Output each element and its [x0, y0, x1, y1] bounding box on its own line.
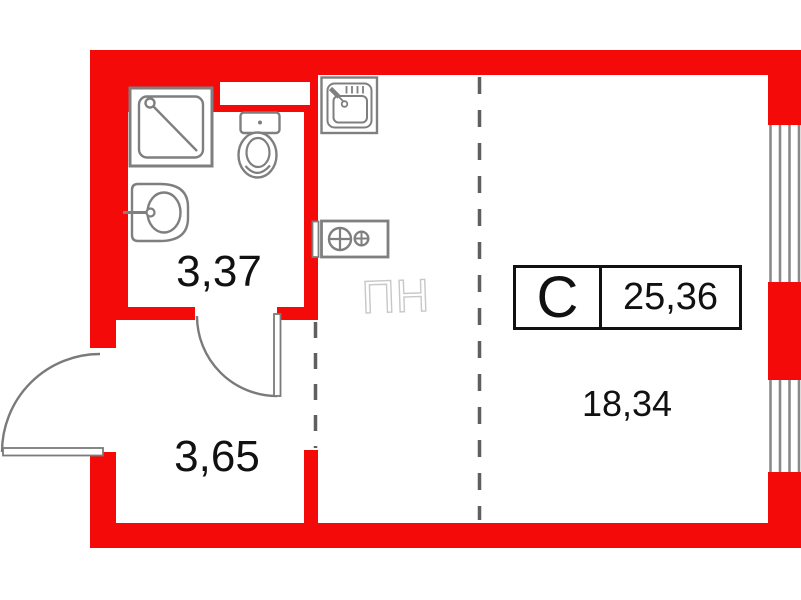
- unit-type-box: C 25,36: [513, 265, 742, 330]
- washbasin-icon: [123, 184, 188, 241]
- shower-icon: [130, 88, 212, 166]
- window-icon: [768, 125, 801, 282]
- wall-right-middle: [768, 282, 801, 380]
- entrance-door-icon: [2, 354, 103, 456]
- window-opening: [768, 380, 801, 472]
- bathroom-door-leaf: [274, 314, 281, 396]
- floor-plan-canvas: ПН 3,37 3,65 18,34 C 25,36: [0, 0, 801, 600]
- kitchen-sink-icon: [322, 78, 378, 134]
- wall-left-upper: [90, 50, 128, 318]
- toilet-icon: [239, 113, 280, 178]
- wall-bathroom-hall-left: [90, 307, 195, 320]
- appliance-ghost-icon: ПН: [361, 269, 431, 323]
- window-icon: [768, 380, 801, 472]
- bathroom-door-icon: [197, 314, 281, 396]
- unit-total-area: 25,36: [602, 268, 739, 327]
- wall-hall-stub: [304, 450, 318, 525]
- bathroom-door-arc: [197, 316, 277, 396]
- room-area-label-hallway: 3,65: [157, 432, 277, 482]
- wall-bathroom-kitchen: [304, 75, 318, 320]
- wall-bottom: [90, 523, 801, 548]
- window-opening: [768, 125, 801, 282]
- wall-niche: [220, 82, 310, 105]
- stove-icon: [313, 221, 389, 257]
- wall-right-lower: [768, 472, 801, 548]
- room-area-label-living-kitchen: 18,34: [567, 384, 687, 424]
- entrance-door-arc: [2, 354, 100, 452]
- entrance-door-leaf: [3, 448, 103, 456]
- room-area-label-bathroom: 3,37: [159, 247, 279, 297]
- wall-right-upper: [768, 75, 801, 125]
- wall-left-door-jamb: [90, 318, 116, 348]
- wall-bathroom-hall-right: [277, 307, 318, 320]
- unit-type-code: C: [516, 268, 602, 327]
